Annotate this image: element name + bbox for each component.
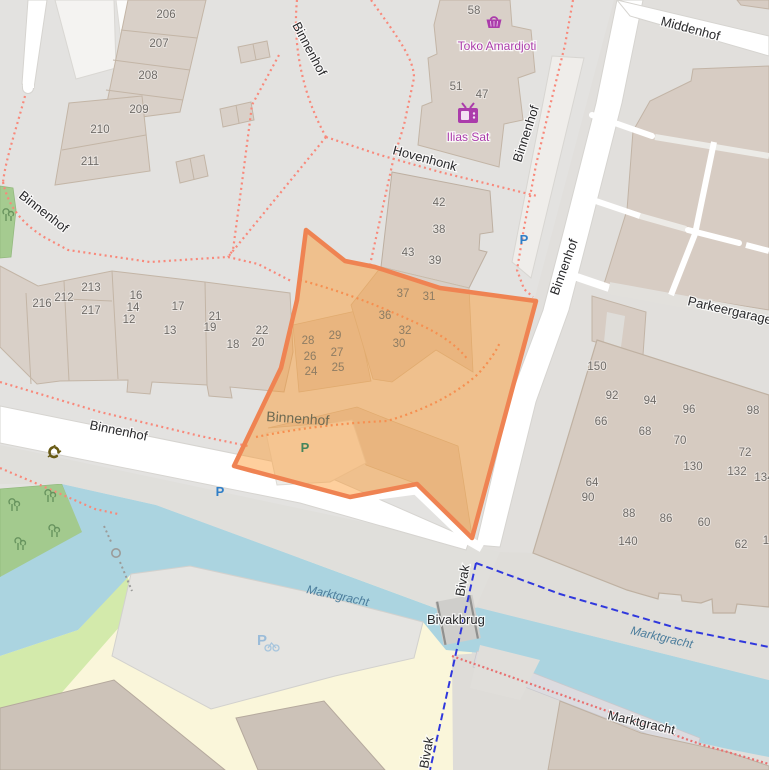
svg-text:1: 1 [763, 535, 769, 547]
svg-text:140: 140 [618, 536, 637, 548]
svg-text:216: 216 [32, 298, 51, 310]
svg-text:92: 92 [606, 390, 619, 402]
svg-text:18: 18 [227, 339, 240, 351]
svg-text:P: P [520, 232, 529, 247]
svg-text:213: 213 [81, 282, 100, 294]
svg-text:29: 29 [329, 330, 342, 342]
svg-text:212: 212 [54, 292, 73, 304]
svg-text:47: 47 [476, 89, 489, 101]
svg-text:98: 98 [747, 405, 760, 417]
svg-text:13: 13 [164, 325, 177, 337]
svg-text:86: 86 [660, 513, 673, 525]
svg-text:30: 30 [393, 338, 406, 350]
svg-text:39: 39 [429, 255, 442, 267]
svg-text:62: 62 [735, 539, 748, 551]
svg-text:132: 132 [727, 466, 746, 478]
svg-text:206: 206 [156, 9, 175, 21]
svg-text:Ilias Sat: Ilias Sat [447, 130, 490, 144]
svg-text:17: 17 [172, 301, 185, 313]
svg-text:26: 26 [304, 351, 317, 363]
svg-text:37: 37 [397, 288, 410, 300]
svg-text:P: P [216, 484, 225, 499]
svg-text:72: 72 [739, 447, 752, 459]
svg-text:207: 207 [149, 38, 168, 50]
svg-text:32: 32 [399, 325, 412, 337]
svg-text:16: 16 [130, 290, 143, 302]
svg-text:210: 210 [90, 124, 109, 136]
svg-text:28: 28 [302, 335, 315, 347]
svg-text:208: 208 [138, 70, 157, 82]
svg-text:58: 58 [468, 5, 481, 17]
svg-text:25: 25 [332, 362, 345, 374]
svg-text:38: 38 [433, 224, 446, 236]
svg-text:51: 51 [450, 81, 463, 93]
svg-text:24: 24 [305, 366, 318, 378]
svg-text:42: 42 [433, 197, 446, 209]
svg-text:134: 134 [754, 472, 769, 484]
svg-text:P: P [301, 440, 310, 455]
svg-text:211: 211 [81, 156, 99, 168]
svg-text:22: 22 [256, 325, 269, 337]
svg-text:27: 27 [331, 347, 344, 359]
svg-text:209: 209 [129, 104, 148, 116]
svg-text:43: 43 [402, 247, 415, 259]
svg-text:70: 70 [674, 435, 687, 447]
svg-text:Toko Amardjoti: Toko Amardjoti [458, 39, 537, 53]
svg-text:Bivakbrug: Bivakbrug [427, 612, 485, 627]
svg-text:88: 88 [623, 508, 636, 520]
svg-text:130: 130 [683, 461, 702, 473]
svg-text:217: 217 [81, 305, 100, 317]
svg-text:68: 68 [639, 426, 652, 438]
svg-text:19: 19 [204, 322, 217, 334]
svg-text:12: 12 [123, 314, 136, 326]
svg-text:96: 96 [683, 404, 696, 416]
svg-text:36: 36 [379, 310, 392, 322]
svg-text:64: 64 [586, 477, 599, 489]
svg-text:60: 60 [698, 517, 711, 529]
svg-text:14: 14 [127, 302, 140, 314]
svg-text:31: 31 [423, 291, 436, 303]
svg-text:20: 20 [252, 337, 265, 349]
svg-text:90: 90 [582, 492, 595, 504]
svg-text:94: 94 [644, 395, 657, 407]
svg-text:66: 66 [595, 416, 608, 428]
svg-text:150: 150 [587, 361, 606, 373]
